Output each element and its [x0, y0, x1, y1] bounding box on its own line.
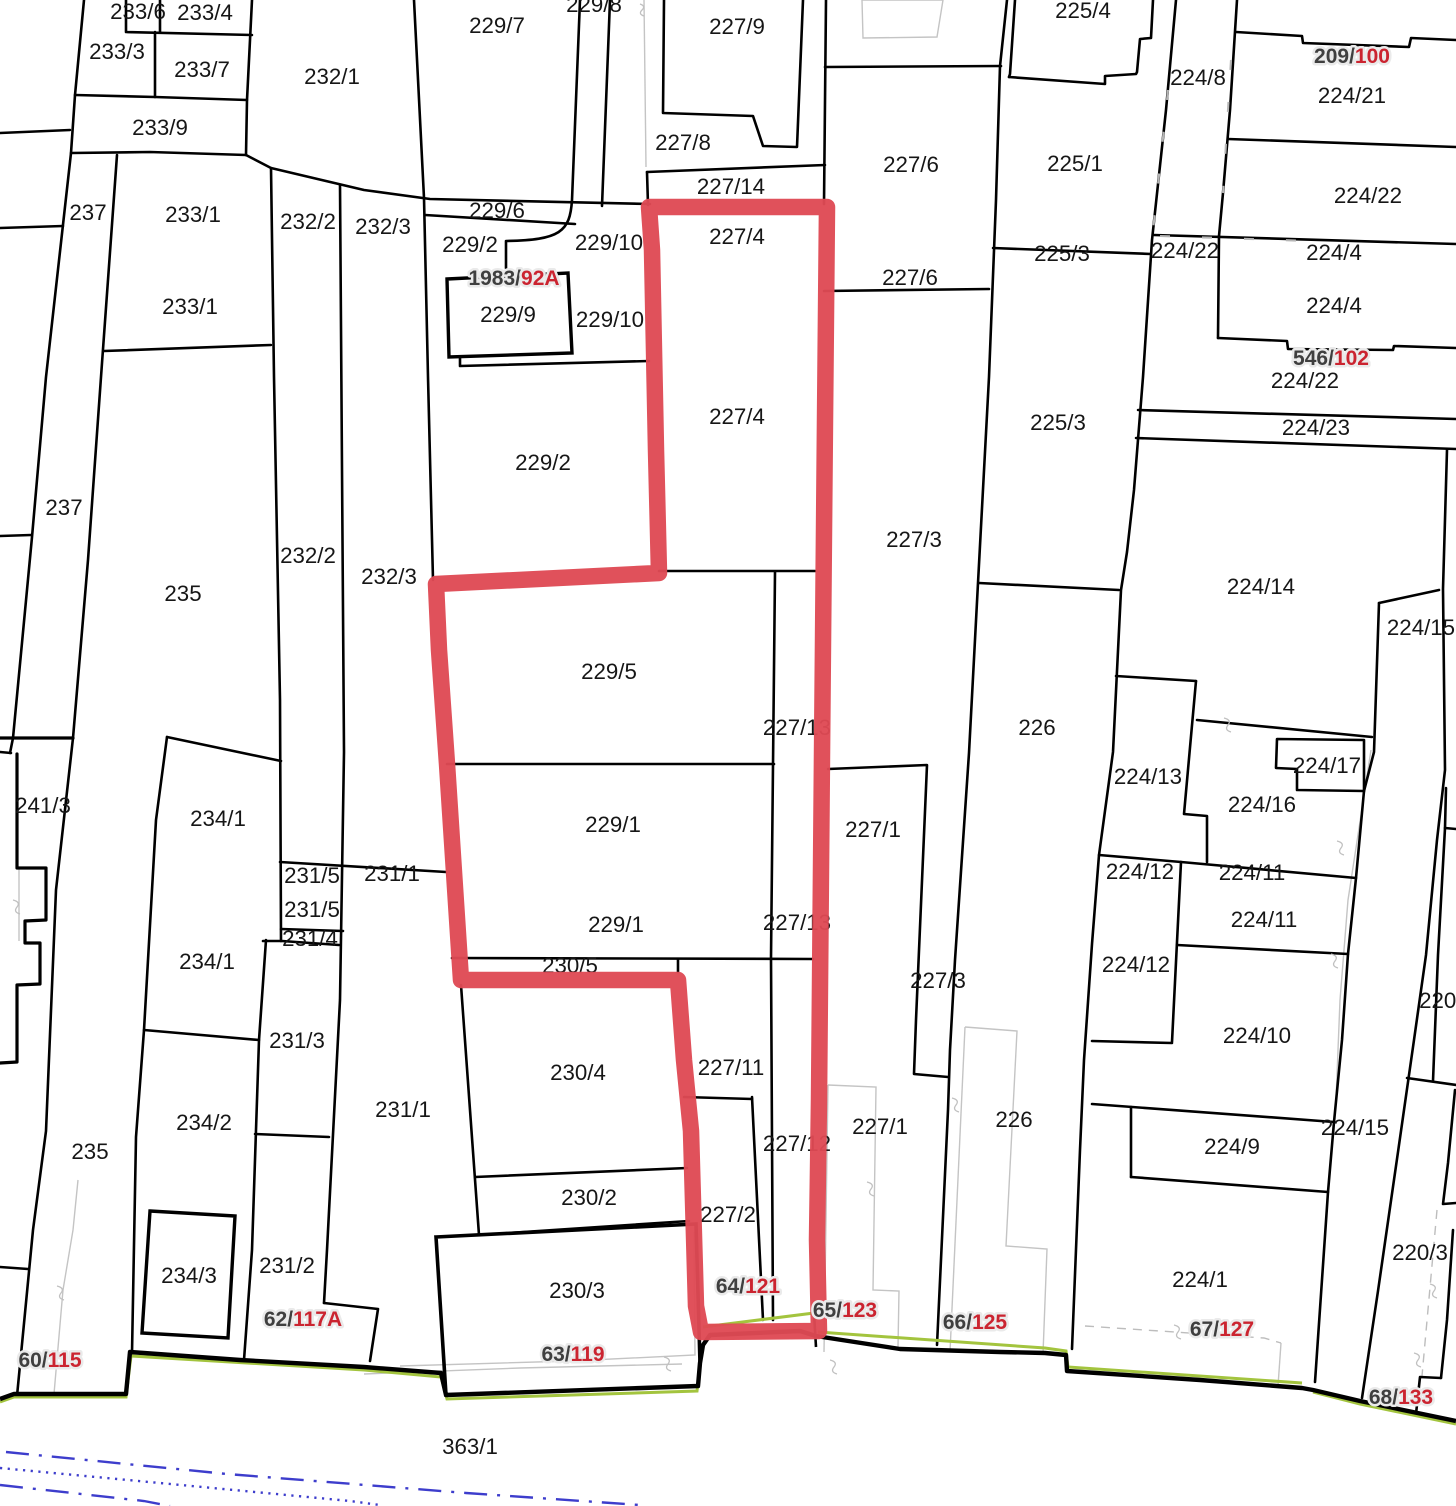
svg-text:229/1: 229/1	[588, 912, 644, 937]
svg-text:63/119: 63/119	[541, 1343, 604, 1366]
svg-text:231/4: 231/4	[282, 926, 338, 951]
svg-text:229/8: 229/8	[566, 0, 622, 17]
svg-text:546/102: 546/102	[1293, 347, 1369, 370]
svg-text:67/127: 67/127	[1190, 1318, 1254, 1341]
svg-text:237: 237	[69, 200, 106, 225]
svg-text:229/5: 229/5	[581, 659, 637, 684]
svg-text:224/15: 224/15	[1387, 615, 1455, 640]
svg-text:230/4: 230/4	[550, 1060, 606, 1085]
svg-text:229/2: 229/2	[515, 450, 571, 475]
svg-text:237: 237	[45, 495, 82, 520]
svg-text:220/2: 220/2	[1419, 988, 1456, 1013]
svg-text:224/14: 224/14	[1227, 574, 1295, 599]
svg-text:66/125: 66/125	[943, 1311, 1008, 1334]
svg-text:224/23: 224/23	[1282, 415, 1350, 440]
svg-text:227/9: 227/9	[709, 14, 765, 39]
svg-text:235: 235	[71, 1139, 108, 1164]
svg-text:234/3: 234/3	[161, 1263, 217, 1288]
svg-text:227/3: 227/3	[886, 527, 942, 552]
svg-text:220/3: 220/3	[1392, 1240, 1448, 1265]
svg-text:229/9: 229/9	[480, 302, 536, 327]
svg-text:234/1: 234/1	[179, 949, 235, 974]
svg-text:227/6: 227/6	[883, 152, 939, 177]
svg-text:232/3: 232/3	[355, 214, 411, 239]
svg-text:233/3: 233/3	[89, 39, 145, 64]
svg-text:230/3: 230/3	[549, 1278, 605, 1303]
svg-text:227/6: 227/6	[882, 265, 938, 290]
svg-text:226: 226	[1018, 715, 1055, 740]
svg-text:232/3: 232/3	[361, 564, 417, 589]
svg-text:229/10: 229/10	[576, 307, 644, 332]
svg-text:224/21: 224/21	[1318, 83, 1386, 108]
svg-text:231/3: 231/3	[269, 1028, 325, 1053]
svg-text:233/7: 233/7	[174, 57, 230, 82]
svg-text:62/117A: 62/117A	[264, 1308, 342, 1331]
svg-text:224/16: 224/16	[1228, 792, 1296, 817]
svg-text:64/121: 64/121	[716, 1275, 781, 1298]
svg-text:224/10: 224/10	[1223, 1023, 1291, 1048]
svg-text:224/22: 224/22	[1271, 368, 1339, 393]
svg-text:234/2: 234/2	[176, 1110, 232, 1135]
svg-text:225/3: 225/3	[1034, 241, 1090, 266]
svg-text:229/6: 229/6	[469, 198, 525, 223]
svg-text:209/100: 209/100	[1314, 45, 1390, 68]
svg-text:224/9: 224/9	[1204, 1134, 1260, 1159]
svg-text:224/12: 224/12	[1106, 859, 1174, 884]
svg-text:227/8: 227/8	[655, 130, 711, 155]
svg-text:224/8: 224/8	[1170, 65, 1226, 90]
svg-text:224/22: 224/22	[1151, 238, 1219, 263]
svg-text:227/1: 227/1	[852, 1114, 908, 1139]
svg-text:227/14: 227/14	[697, 174, 765, 199]
svg-text:231/1: 231/1	[375, 1097, 431, 1122]
svg-text:227/1: 227/1	[845, 817, 901, 842]
svg-text:363/1: 363/1	[442, 1434, 498, 1459]
svg-text:65/123: 65/123	[813, 1299, 877, 1322]
svg-text:227/2: 227/2	[700, 1202, 756, 1227]
svg-text:224/15: 224/15	[1321, 1115, 1389, 1140]
svg-text:235: 235	[164, 581, 201, 606]
svg-text:231/5: 231/5	[284, 897, 340, 922]
svg-text:224/12: 224/12	[1102, 952, 1170, 977]
svg-text:227/4: 227/4	[709, 224, 765, 249]
svg-text:224/17: 224/17	[1293, 753, 1361, 778]
svg-text:231/5: 231/5	[284, 863, 340, 888]
svg-text:229/10: 229/10	[575, 230, 643, 255]
svg-text:229/2: 229/2	[442, 232, 498, 257]
svg-text:232/1: 232/1	[304, 64, 360, 89]
svg-text:227/11: 227/11	[698, 1055, 765, 1080]
svg-text:231/2: 231/2	[259, 1253, 315, 1278]
svg-text:233/4: 233/4	[177, 0, 233, 25]
svg-text:232/2: 232/2	[280, 209, 336, 234]
svg-text:231/1: 231/1	[364, 861, 420, 886]
svg-text:241/3: 241/3	[15, 793, 71, 818]
svg-text:233/6: 233/6	[110, 0, 166, 24]
svg-text:227/4: 227/4	[709, 404, 765, 429]
svg-text:234/1: 234/1	[190, 806, 246, 831]
svg-text:233/1: 233/1	[162, 294, 218, 319]
svg-text:60/115: 60/115	[18, 1349, 81, 1372]
svg-text:225/3: 225/3	[1030, 410, 1086, 435]
svg-text:225/4: 225/4	[1055, 0, 1111, 23]
svg-text:230/2: 230/2	[561, 1185, 617, 1210]
svg-text:226: 226	[995, 1107, 1032, 1132]
svg-text:224/13: 224/13	[1114, 764, 1182, 789]
svg-text:229/1: 229/1	[585, 812, 641, 837]
svg-text:232/2: 232/2	[280, 543, 336, 568]
svg-text:233/9: 233/9	[132, 115, 188, 140]
svg-text:229/7: 229/7	[469, 13, 525, 38]
svg-text:1983/92A: 1983/92A	[468, 267, 559, 290]
svg-text:233/1: 233/1	[165, 202, 221, 227]
svg-text:224/4: 224/4	[1306, 240, 1362, 265]
svg-text:224/4: 224/4	[1306, 293, 1362, 318]
svg-text:224/22: 224/22	[1334, 183, 1402, 208]
svg-text:224/11: 224/11	[1231, 907, 1298, 932]
svg-text:227/3: 227/3	[910, 968, 966, 993]
svg-text:225/1: 225/1	[1047, 151, 1103, 176]
svg-text:224/1: 224/1	[1172, 1267, 1228, 1292]
svg-text:68/133: 68/133	[1369, 1386, 1433, 1409]
svg-text:224/11: 224/11	[1219, 860, 1286, 885]
